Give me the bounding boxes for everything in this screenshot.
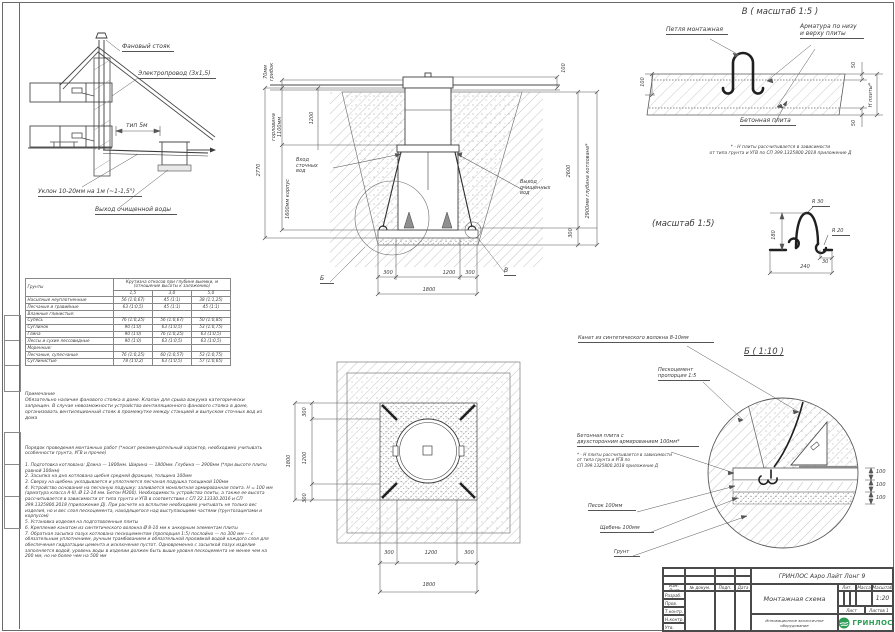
- detail-b-soil-label: Грунт: [614, 550, 640, 557]
- station-symbol: [158, 142, 216, 171]
- table-row: Песчаные и гравийные63 (1:0,5)45 (1:1)45…: [26, 304, 231, 311]
- table-cell: 50 (1:0,85): [192, 317, 231, 324]
- dim-b300r: 300: [461, 271, 479, 277]
- table-cell: [192, 311, 231, 318]
- table-cell: [153, 345, 192, 352]
- station-neck: [405, 88, 451, 145]
- tb-logo-cell: ГРИНЛОС: [838, 614, 893, 631]
- lid-handle: [423, 446, 432, 455]
- dim-300-right: 300: [569, 223, 575, 243]
- table-row: Влажные глинистые:: [26, 311, 231, 318]
- detail-v-rebar-label: Арматура по низу и верху плиты: [800, 24, 864, 39]
- tb-empty: [715, 568, 735, 576]
- tb-doc-name: Монтажная схема: [751, 584, 838, 614]
- table-cell: 56 (1:0,67): [114, 297, 153, 304]
- plan-l1200: 1200: [303, 446, 309, 470]
- table-cell: Насыпные неуплотненные: [26, 297, 114, 304]
- table-row: Моренные:: [26, 345, 231, 352]
- table-cell: Песчаные, супесчаные: [26, 352, 114, 359]
- detail-b-rope-label: Канат из синтетического волокна 8-10мм: [578, 336, 714, 343]
- dim-depth: 2900мм глубина котлована*: [586, 125, 592, 237]
- detail-v-dim50b: 50: [852, 116, 858, 130]
- dim-100-right: 100: [562, 60, 568, 76]
- table-cell: Песчаные и гравийные: [26, 304, 114, 311]
- tb-row-ncontrol: Н.контр.: [663, 615, 685, 623]
- loop-profile-drawing: [615, 195, 893, 290]
- table-row: Глина90 (1:0)76 (1:0,25)63 (1:0,5): [26, 331, 231, 338]
- tb-sheets: Листов 1: [865, 606, 893, 614]
- plan-l1800: 1800: [287, 449, 293, 473]
- loop-profile-title: (масштаб 1:5): [652, 220, 732, 230]
- notes-body: Обязательно наличие фанового стояка в до…: [25, 398, 268, 422]
- montage-title: Порядок проведения монтажных работ (*нос…: [25, 446, 273, 457]
- montage-steps: 1. Подготовка котлована: Длина — 1800мм.…: [25, 463, 273, 560]
- station-body: [397, 73, 459, 230]
- table-cell: 76 (1:0,25): [114, 317, 153, 324]
- detail-b-dims: [865, 468, 875, 504]
- tb-row-tcontrol: Т.контр.: [663, 607, 685, 615]
- vent-nub: [425, 73, 431, 77]
- plan-l300a: 300: [303, 404, 309, 420]
- table-cell: Супесь: [26, 317, 114, 324]
- table-cell: 57 (1:0,65): [192, 358, 231, 365]
- slab-strip: [733, 468, 865, 480]
- table-cell: 63 (1:0,5): [153, 358, 192, 365]
- detail-v-title: В ( масштаб 1:5 ): [720, 8, 840, 18]
- loop-profile: [770, 213, 832, 253]
- notes-block: Примечание Обязательно наличие фанового …: [25, 386, 268, 428]
- margin-divider: [4, 340, 19, 341]
- table-cell: 63 (1:0,5): [153, 324, 192, 331]
- tb-lit-label: Лит.: [838, 584, 856, 591]
- margin-box: [4, 315, 21, 392]
- title-block: Изм. Лист № докум. Подп. Дата Разраб. Пр…: [662, 567, 894, 632]
- table-row: Лессы и сухие лессовидные90 (1:0)63 (1:0…: [26, 338, 231, 345]
- detail-b-note: * - Н плиты рассчитывается в зависимости…: [577, 452, 699, 468]
- table-cell: 63 (1:0,5): [114, 304, 153, 311]
- dim-b1200: 1200: [437, 271, 461, 277]
- detail-v-dim50a: 50: [852, 58, 858, 72]
- tb-product-name: ГРИНЛОС Аэро Лайт Лонг 9: [751, 568, 893, 584]
- loop-d180: 180: [772, 222, 778, 248]
- table-cell: [114, 311, 153, 318]
- house-section-sketch: [20, 30, 270, 270]
- tb-empty: [735, 568, 751, 576]
- sand-strip: [733, 480, 865, 492]
- detail-v-slab-label: Бетонная плита: [740, 118, 796, 126]
- plan-b1200: 1200: [419, 551, 443, 557]
- loop-r30: R 30: [812, 200, 830, 207]
- house-outlet-label: Выход очищенной воды: [95, 207, 177, 215]
- table-cell: [192, 345, 231, 352]
- drawing-sheet: { "colors": {"logo_green": "#2e9e57", "l…: [0, 0, 895, 632]
- dim-1200: 1200: [310, 98, 316, 138]
- soil-slope-table: Грунты Крутизна откосов при глубине выем…: [25, 278, 231, 366]
- table-header-main: Крутизна откосов при глубине выемки, м (…: [114, 279, 231, 291]
- section-callout-v: В: [504, 268, 516, 276]
- tb-mass-cell: [856, 591, 872, 606]
- table-cell: 53 (1:0,75): [192, 324, 231, 331]
- table-header-depth: 3,0: [153, 290, 192, 297]
- tb-col-izm: Изм. Лист: [663, 584, 685, 591]
- tb-col-date: Дата: [735, 584, 751, 591]
- table-cell: Суглинок: [26, 324, 114, 331]
- tb-empty: [715, 591, 735, 631]
- detail-b-d100b: 100: [876, 483, 890, 489]
- table-cell: [153, 311, 192, 318]
- notes-title: Примечание: [25, 392, 55, 397]
- plan-l300b: 300: [303, 490, 309, 506]
- table-row: Насыпные неуплотненные56 (1:0,67)45 (1:1…: [26, 297, 231, 304]
- table-cell: 45 (1:1): [153, 304, 192, 311]
- table-row: Суглинистые78 (1:0,2)63 (1:0,5)57 (1:0,6…: [26, 358, 231, 365]
- detail-v-loop-label: Петля монтажная: [666, 27, 728, 35]
- detail-b-sandcement-label: Пескоцемент пропорция 1:5: [658, 368, 710, 381]
- detail-v-note: * - Н плиты рассчитывается в зависимости…: [688, 145, 873, 156]
- table-cell: 78 (1:0,2): [114, 358, 153, 365]
- tb-empty: [685, 568, 715, 576]
- dim-b300l: 300: [379, 271, 397, 277]
- tb-row-approver: Утв.: [663, 623, 685, 631]
- table-cell: 56 (1:0,67): [153, 317, 192, 324]
- loop-d240: 240: [793, 265, 817, 271]
- table-row: Песчаные, супесчаные76 (1:0,25)60 (1:0,5…: [26, 352, 231, 359]
- tb-empty: [663, 568, 685, 576]
- table-cell: 90 (1:0): [114, 324, 153, 331]
- table-cell: Лессы и сухие лессовидные: [26, 338, 114, 345]
- plan-b300a: 300: [381, 551, 397, 557]
- margin-divider: [4, 496, 19, 497]
- dim-2770: 2770: [257, 140, 263, 200]
- table-row: Супесь76 (1:0,25)56 (1:0,67)50 (1:0,85): [26, 317, 231, 324]
- table-cell: 90 (1:0): [114, 331, 153, 338]
- outlet-pipe: [103, 150, 208, 156]
- table-header-soil: Грунты: [26, 279, 114, 297]
- detail-b-slab-label: Бетонная плита с двухсторонним армирован…: [577, 434, 699, 447]
- detail-b-sand-label: Песок 100мм: [588, 504, 636, 511]
- dim-b1800: 1800: [417, 288, 441, 294]
- vent-cap: [96, 33, 107, 38]
- house-wire-label: Электропровод (3х1,5): [138, 71, 216, 79]
- table-cell: 76 (1:0,25): [114, 352, 153, 359]
- bottom-slab: [378, 230, 478, 238]
- table-header-depth: 5,0: [192, 290, 231, 297]
- table-cell: Моренные:: [26, 345, 114, 352]
- plan-b300b: 300: [461, 551, 477, 557]
- margin-divider: [4, 464, 19, 465]
- tb-sheet: Лист: [838, 606, 865, 614]
- dim-grib: 70мм грибок: [264, 52, 275, 92]
- dim-neck: горловина 1100мм: [272, 104, 283, 150]
- table-cell: 60 (1:0,57): [153, 352, 192, 359]
- table-cell: 45 (1:1): [153, 297, 192, 304]
- section-outlet-label: Выход очищенных вод: [520, 180, 562, 197]
- loop-r20: R 20: [832, 229, 850, 236]
- margin-box: [4, 432, 21, 529]
- bedding-layer: [378, 238, 478, 245]
- loop-d30: 30: [822, 260, 836, 266]
- plan-view-drawing: [285, 355, 535, 605]
- tb-scale-label: Масштаб: [872, 584, 893, 591]
- detail-b-d100a: 100: [876, 470, 890, 476]
- montage-block: Порядок проведения монтажных работ (*нос…: [25, 440, 273, 566]
- section-callout-b: Б: [320, 276, 334, 284]
- dim-2600: 2600: [567, 146, 573, 196]
- table-cell: 45 (1:1): [192, 304, 231, 311]
- detail-b-d100c: 100: [876, 496, 890, 502]
- tb-empty: [715, 576, 735, 584]
- margin-divider: [4, 365, 19, 366]
- tb-empty: [685, 591, 715, 631]
- tb-col-sign: Подп.: [715, 584, 735, 591]
- table-cell: [114, 345, 153, 352]
- gravel-strip: [733, 492, 865, 504]
- detail-v-dimH: Н плиты*: [869, 76, 875, 114]
- detail-v-dim100: 100: [641, 72, 647, 92]
- house-vent-label: Фановый стояк: [122, 44, 174, 52]
- table-cell: Влажные глинистые:: [26, 311, 114, 318]
- tb-scale-value: 1:20: [872, 591, 893, 606]
- tb-empty: [685, 576, 715, 584]
- house-slope-label: Уклон 10-20мм на 1м (~1-1,5°): [38, 189, 142, 197]
- table-cell: 76 (1:0,25): [153, 331, 192, 338]
- tb-mass-label: Масса: [856, 584, 872, 591]
- table-cell: Суглинистые: [26, 358, 114, 365]
- tb-col-doc: № докум.: [685, 584, 715, 591]
- concrete-slab: [647, 74, 845, 115]
- house-pipe-label: тип 5м: [126, 123, 156, 130]
- tb-row-developer: Разраб.: [663, 591, 685, 599]
- table-cell: 63 (1:0,5): [192, 338, 231, 345]
- table-row: Суглинок90 (1:0)63 (1:0,5)53 (1:0,75): [26, 324, 231, 331]
- dim-body: 1600мм корпус: [286, 156, 292, 242]
- plumbing-fixtures: [50, 88, 94, 147]
- tb-row-checker: Пров.: [663, 599, 685, 607]
- tb-empty: [663, 576, 685, 584]
- table-cell: 90 (1:0): [114, 338, 153, 345]
- section-inlet-label: Вход сточных вод: [296, 158, 330, 175]
- detail-b-title: Б ( 1:10 ): [744, 348, 814, 358]
- tb-empty: [735, 591, 751, 631]
- table-cell: 38 (1:1,25): [192, 297, 231, 304]
- station-lid: [403, 77, 453, 88]
- flow-arrow: [210, 148, 216, 153]
- station-flange: [397, 145, 459, 152]
- grinlos-logo-icon: [838, 617, 850, 629]
- detail-b-gravel-label: Щебень 100мм: [600, 526, 654, 533]
- tb-tagline: Инновационное экологичное оборудование: [751, 614, 838, 631]
- table-header-depth: 1,5: [114, 290, 153, 297]
- table-cell: Глина: [26, 331, 114, 338]
- plan-b1800: 1800: [417, 583, 441, 589]
- table-cell: 63 (1:0,5): [192, 331, 231, 338]
- grinlos-logo-text: ГРИНЛОС: [852, 619, 892, 627]
- table-cell: 53 (1:0,75): [192, 352, 231, 359]
- tb-empty: [735, 576, 751, 584]
- table-cell: 63 (1:0,5): [153, 338, 192, 345]
